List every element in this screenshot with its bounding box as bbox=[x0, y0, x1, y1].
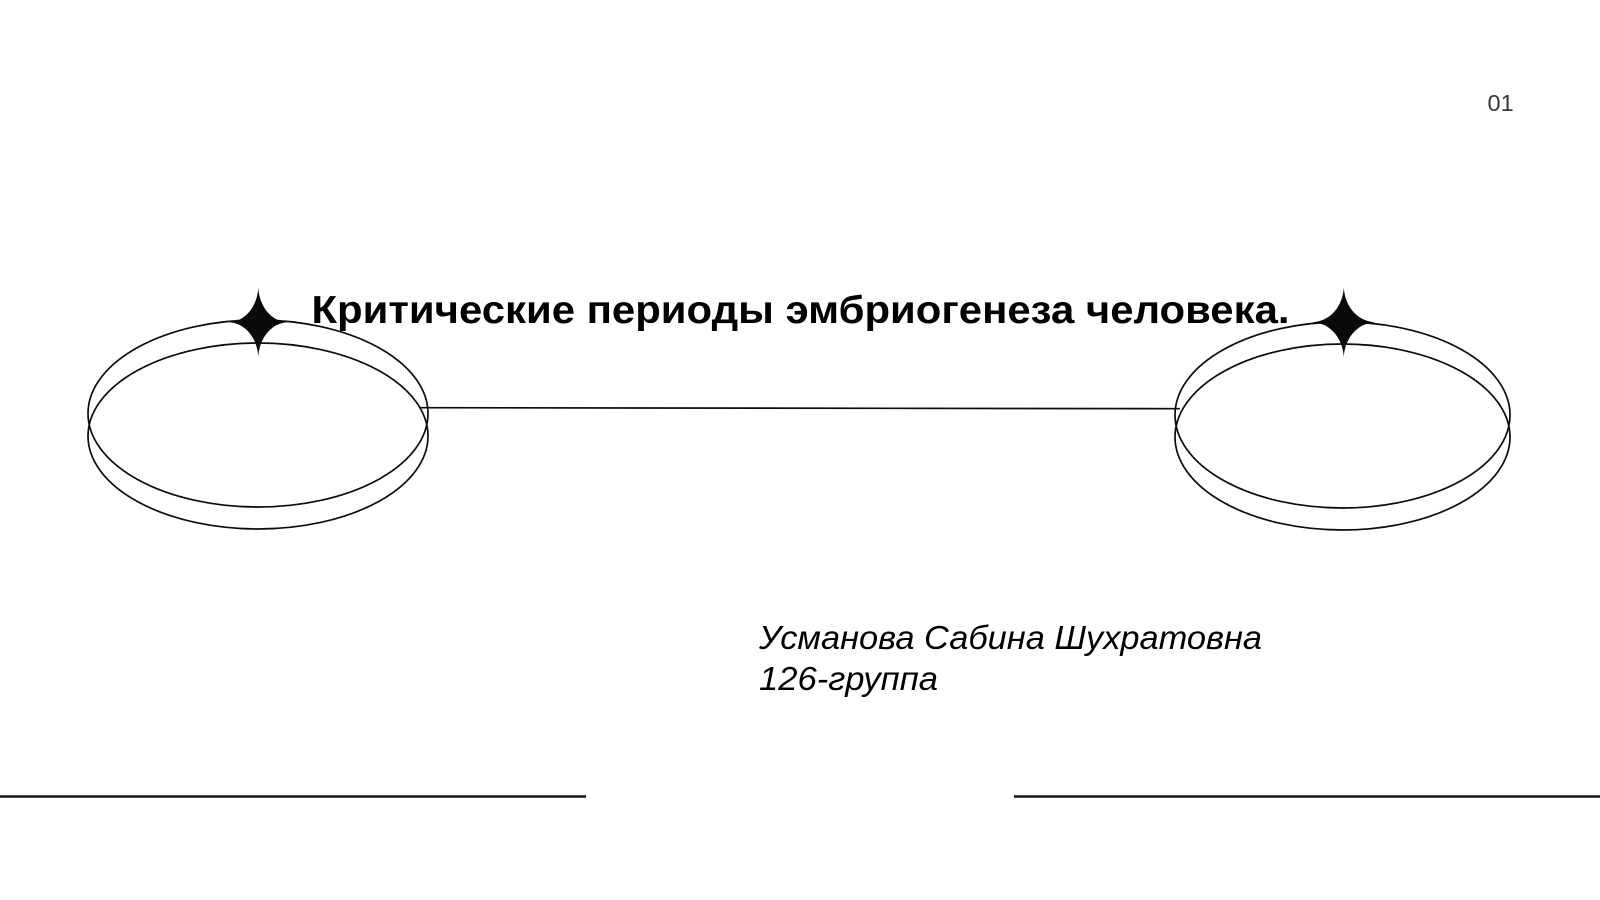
svg-text:01: 01 bbox=[1488, 90, 1514, 116]
svg-text:126-группа: 126-группа bbox=[759, 660, 938, 697]
svg-text:Критические периоды эмбриогене: Критические периоды эмбриогенеза человек… bbox=[312, 289, 1290, 332]
svg-text:Усманова Сабина Шухратовна: Усманова Сабина Шухратовна bbox=[758, 619, 1262, 656]
